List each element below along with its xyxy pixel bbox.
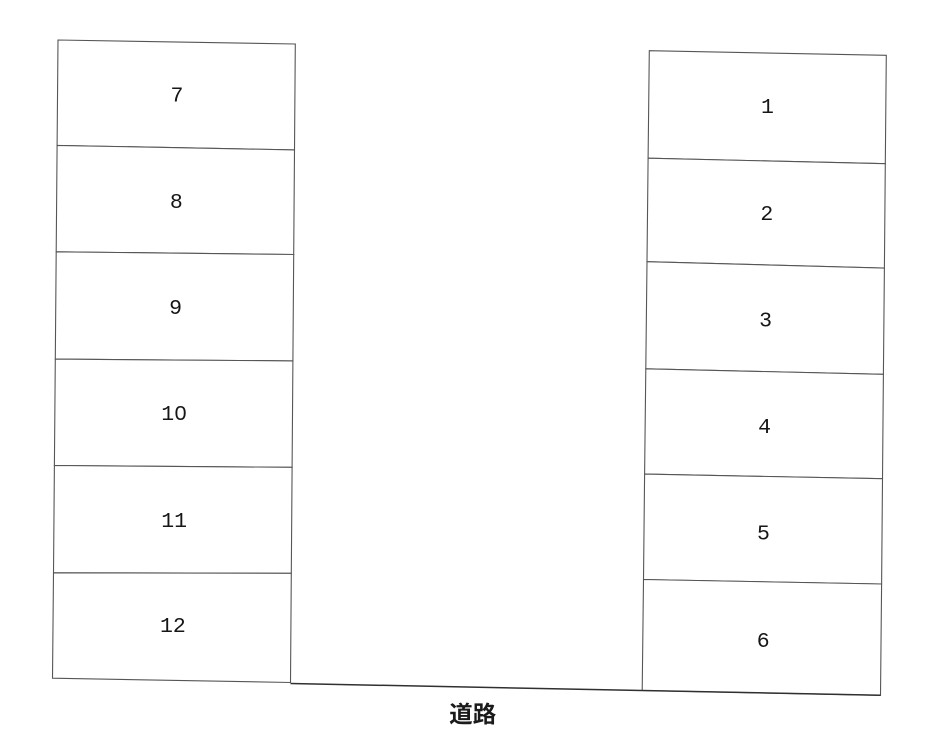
svg-text:1: 1 bbox=[761, 96, 774, 120]
svg-text:4: 4 bbox=[758, 416, 771, 440]
svg-text:8: 8 bbox=[170, 191, 183, 215]
svg-text:12: 12 bbox=[160, 615, 186, 639]
svg-text:5: 5 bbox=[757, 523, 770, 547]
svg-text:3: 3 bbox=[759, 310, 772, 334]
svg-text:10: 10 bbox=[161, 403, 187, 427]
svg-text:7: 7 bbox=[171, 85, 184, 109]
svg-text:2: 2 bbox=[760, 203, 773, 227]
svg-text:9: 9 bbox=[169, 297, 182, 321]
svg-text:11: 11 bbox=[161, 510, 187, 534]
svg-text:6: 6 bbox=[757, 630, 770, 654]
